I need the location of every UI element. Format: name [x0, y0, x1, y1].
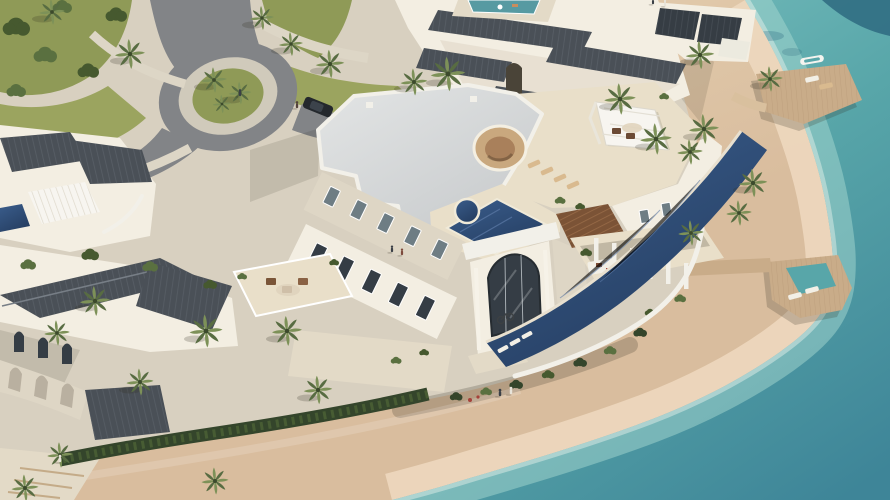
- canopy-sofa: [626, 133, 635, 139]
- roof-vent: [366, 102, 373, 108]
- round-spa: [455, 199, 479, 223]
- flowering-planter: [468, 398, 472, 402]
- canopy-rug: [622, 123, 642, 133]
- aerial-villa-render: [0, 0, 890, 500]
- arch-window: [38, 338, 48, 359]
- rooftop-circular-lounge: [474, 126, 526, 170]
- neighbor-rooftop-pool: [468, 0, 540, 14]
- reef-shade-2: [782, 48, 802, 56]
- render-canvas: [0, 0, 890, 500]
- towel: [512, 4, 518, 7]
- roof-vent: [470, 96, 477, 102]
- arch-window: [14, 332, 24, 353]
- canopy-sofa: [612, 128, 621, 134]
- deck-rug: [276, 284, 300, 296]
- flowering-planter: [476, 395, 479, 398]
- umbrella: [498, 5, 503, 10]
- arch-window: [62, 344, 72, 365]
- deck-sofa: [266, 278, 276, 285]
- deck-sofa: [298, 278, 308, 285]
- arch-doorway: [506, 63, 522, 94]
